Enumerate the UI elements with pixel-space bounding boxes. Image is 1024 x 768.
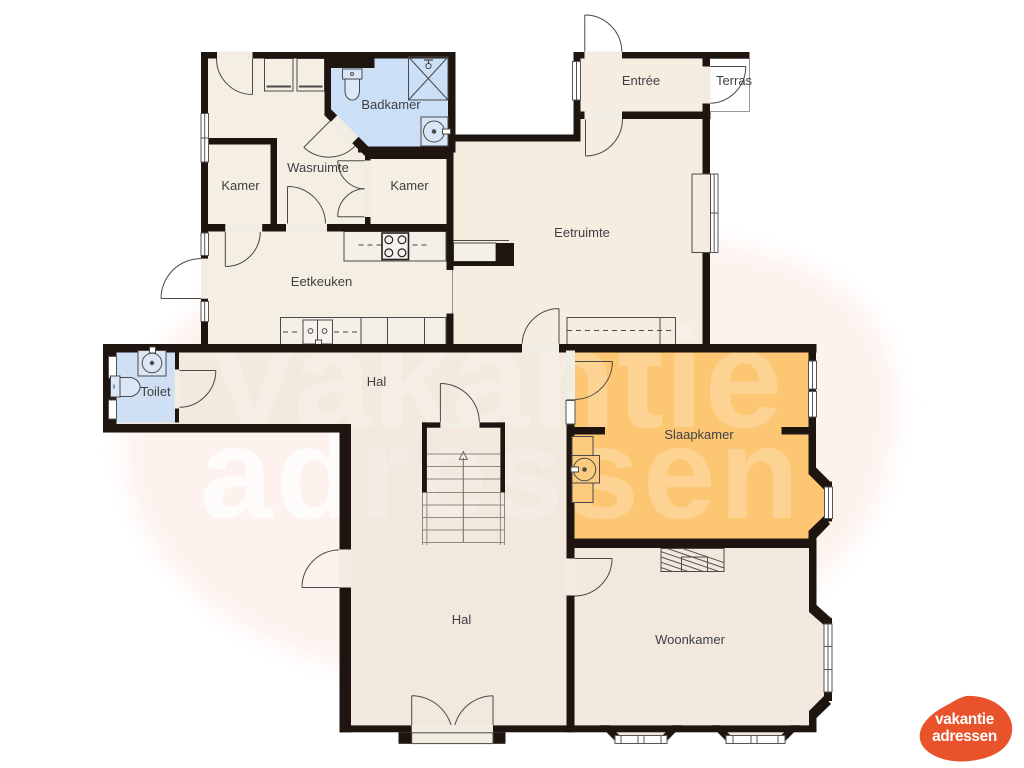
- svg-text:Hal: Hal: [367, 374, 387, 389]
- svg-text:Eetruimte: Eetruimte: [554, 225, 610, 240]
- svg-text:Terras: Terras: [716, 73, 753, 88]
- svg-text:Woonkamer: Woonkamer: [655, 632, 726, 647]
- svg-text:Slaapkamer: Slaapkamer: [664, 427, 734, 442]
- svg-text:vakantie: vakantie: [935, 711, 994, 728]
- svg-text:Kamer: Kamer: [390, 178, 429, 193]
- svg-text:Eetkeuken: Eetkeuken: [291, 274, 352, 289]
- svg-text:Kamer: Kamer: [221, 178, 260, 193]
- svg-text:Entrée: Entrée: [622, 73, 660, 88]
- svg-text:Hal: Hal: [452, 612, 472, 627]
- svg-text:Badkamer: Badkamer: [361, 97, 421, 112]
- svg-text:Wasruimte: Wasruimte: [287, 160, 349, 175]
- svg-text:adressen: adressen: [932, 728, 997, 745]
- svg-text:Toilet: Toilet: [140, 384, 171, 399]
